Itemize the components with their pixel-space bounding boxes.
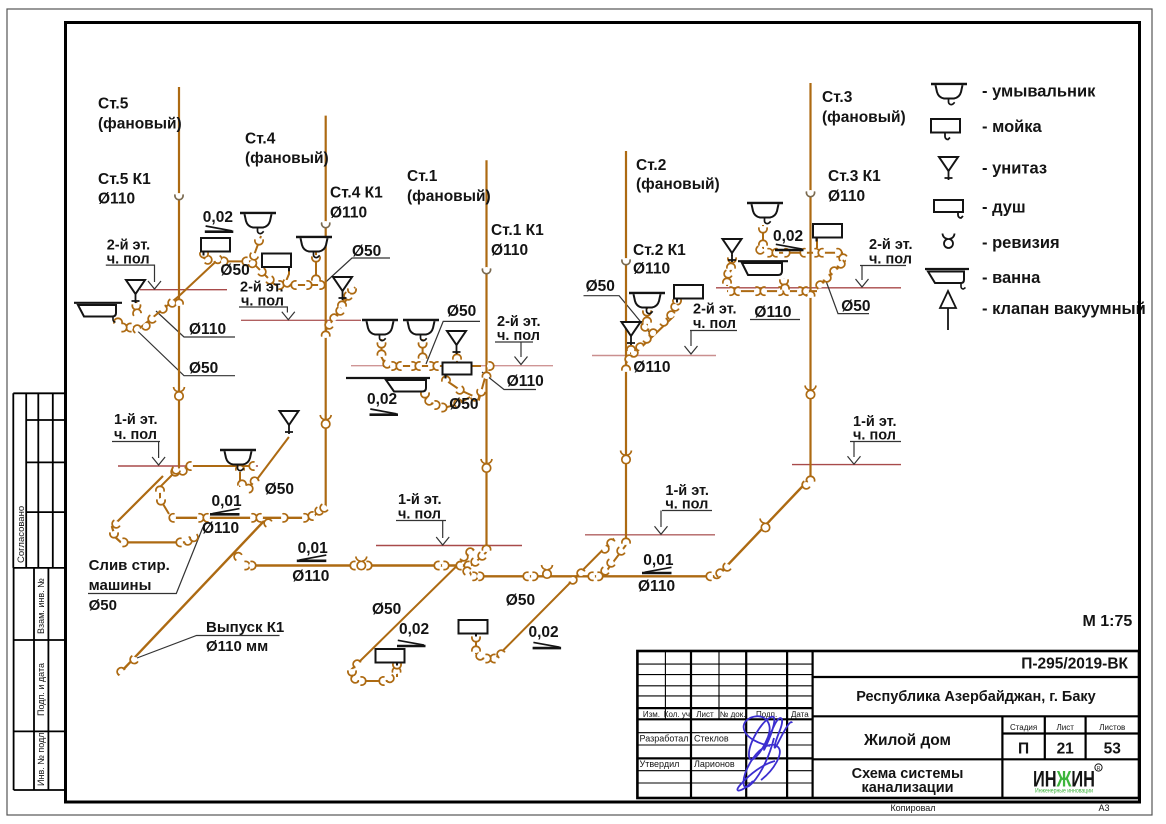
svg-text:Ø50: Ø50 <box>506 592 535 609</box>
svg-text:1-й эт.: 1-й эт. <box>114 412 158 428</box>
svg-text:Ø50: Ø50 <box>586 278 615 295</box>
svg-text:0,02: 0,02 <box>367 391 397 408</box>
svg-text:- мойка: - мойка <box>982 118 1043 136</box>
svg-text:Ø110: Ø110 <box>189 321 226 338</box>
svg-text:Ø110: Ø110 <box>330 205 367 222</box>
svg-text:Выпуск К1: Выпуск К1 <box>206 619 284 636</box>
svg-text:Ø50: Ø50 <box>352 243 381 260</box>
svg-text:Согласовано: Согласовано <box>16 506 27 563</box>
svg-text:Ларионов: Ларионов <box>694 759 735 769</box>
svg-text:Жилой дом: Жилой дом <box>863 732 951 749</box>
svg-text:Ст.4 К1: Ст.4 К1 <box>330 185 383 202</box>
svg-text:Лист: Лист <box>1057 723 1075 732</box>
svg-text:Дата: Дата <box>791 710 809 719</box>
svg-text:(фановый): (фановый) <box>407 188 491 205</box>
svg-text:Ø110: Ø110 <box>754 304 791 321</box>
svg-text:Инженерные инновации: Инженерные инновации <box>1035 789 1093 795</box>
svg-text:0,02: 0,02 <box>529 624 559 641</box>
svg-text:канализации: канализации <box>861 780 953 796</box>
svg-text:А3: А3 <box>1098 803 1109 813</box>
svg-text:Ø110: Ø110 <box>633 359 670 376</box>
svg-text:21: 21 <box>1057 741 1075 758</box>
svg-text:Ст.1: Ст.1 <box>407 168 438 185</box>
svg-text:ч. пол: ч. пол <box>107 251 150 267</box>
svg-text:0,01: 0,01 <box>298 540 329 557</box>
svg-text:0,01: 0,01 <box>643 552 674 569</box>
svg-text:ч. пол: ч. пол <box>497 328 540 344</box>
svg-text:- клапан вакуумный: - клапан вакуумный <box>982 300 1146 318</box>
svg-text:- душ: - душ <box>982 199 1026 217</box>
svg-text:ч. пол: ч. пол <box>869 252 912 268</box>
svg-text:Ø110: Ø110 <box>202 520 239 537</box>
svg-text:Ø110: Ø110 <box>638 578 675 595</box>
svg-text:Ст.2: Ст.2 <box>636 157 666 174</box>
svg-text:Ø110: Ø110 <box>828 188 865 205</box>
svg-text:ч. пол: ч. пол <box>241 294 284 310</box>
svg-text:Разработал: Разработал <box>640 734 689 744</box>
svg-text:R: R <box>1097 766 1101 772</box>
svg-text:Утвердил: Утвердил <box>640 759 680 769</box>
svg-text:Ø50: Ø50 <box>189 360 218 377</box>
svg-text:ч. пол: ч. пол <box>398 507 441 523</box>
svg-text:ч. пол: ч. пол <box>853 428 896 444</box>
svg-text:Ø50: Ø50 <box>265 481 294 498</box>
svg-text:(фановый): (фановый) <box>822 109 906 126</box>
svg-text:Лист: Лист <box>696 710 714 719</box>
svg-text:- ванна: - ванна <box>982 269 1041 287</box>
svg-text:Ст.2 К1: Ст.2 К1 <box>633 242 686 259</box>
svg-text:(фановый): (фановый) <box>245 150 329 167</box>
svg-text:Ø110: Ø110 <box>633 261 670 278</box>
svg-text:Ø110: Ø110 <box>491 242 528 259</box>
svg-text:Ø110: Ø110 <box>292 568 329 585</box>
svg-text:Ø50: Ø50 <box>841 298 870 315</box>
svg-text:Кол. уч.: Кол. уч. <box>664 710 692 719</box>
svg-text:П: П <box>1018 741 1029 758</box>
svg-text:Ø110 мм: Ø110 мм <box>206 638 268 655</box>
svg-text:№ док.: № док. <box>720 710 746 719</box>
svg-text:0,01: 0,01 <box>212 493 243 510</box>
svg-text:Ст.4: Ст.4 <box>245 131 276 148</box>
svg-text:П-295/2019-ВК: П-295/2019-ВК <box>1021 656 1128 673</box>
svg-text:Ст.5 К1: Ст.5 К1 <box>98 171 151 188</box>
svg-text:Изм.: Изм. <box>643 710 660 719</box>
svg-text:Ø50: Ø50 <box>447 303 476 320</box>
svg-text:53: 53 <box>1104 741 1122 758</box>
svg-text:Ст.3 К1: Ст.3 К1 <box>828 168 881 185</box>
svg-text:Стадия: Стадия <box>1010 723 1037 732</box>
svg-text:Слив стир.: Слив стир. <box>89 557 170 574</box>
svg-text:Ст.1 К1: Ст.1 К1 <box>491 222 544 239</box>
svg-text:Ø50: Ø50 <box>89 597 117 614</box>
svg-text:Ø50: Ø50 <box>372 601 401 618</box>
svg-text:Ø50: Ø50 <box>449 396 478 413</box>
svg-text:Ст.3: Ст.3 <box>822 89 853 106</box>
svg-text:Стеклов: Стеклов <box>694 734 729 744</box>
svg-text:Подп. и дата: Подп. и дата <box>36 663 46 716</box>
svg-text:М 1:75: М 1:75 <box>1083 613 1133 630</box>
svg-text:Ø110: Ø110 <box>507 373 544 390</box>
svg-text:Листов: Листов <box>1099 723 1125 732</box>
svg-text:ч. пол: ч. пол <box>665 497 708 513</box>
svg-text:Инв. № подл.: Инв. № подл. <box>36 730 46 786</box>
svg-text:- ревизия: - ревизия <box>982 234 1060 252</box>
svg-text:(фановый): (фановый) <box>98 115 182 132</box>
svg-text:Ст.5: Ст.5 <box>98 96 129 113</box>
svg-text:ч. пол: ч. пол <box>114 427 157 443</box>
svg-text:- умывальник: - умывальник <box>982 83 1096 101</box>
svg-text:(фановый): (фановый) <box>636 176 720 193</box>
svg-text:машины: машины <box>89 577 152 594</box>
svg-text:Ø110: Ø110 <box>98 191 135 208</box>
svg-text:0,02: 0,02 <box>773 228 803 245</box>
svg-text:Взам. инв. №: Взам. инв. № <box>36 578 46 634</box>
svg-text:Республика Азербайджан, г. Бак: Республика Азербайджан, г. Баку <box>856 689 1095 705</box>
svg-text:- унитаз: - унитаз <box>982 160 1047 178</box>
svg-text:0,02: 0,02 <box>399 621 429 638</box>
svg-text:ч. пол: ч. пол <box>693 316 736 332</box>
svg-text:Копировал: Копировал <box>890 803 935 813</box>
svg-text:0,02: 0,02 <box>203 209 233 226</box>
svg-text:Ø50: Ø50 <box>220 262 249 279</box>
